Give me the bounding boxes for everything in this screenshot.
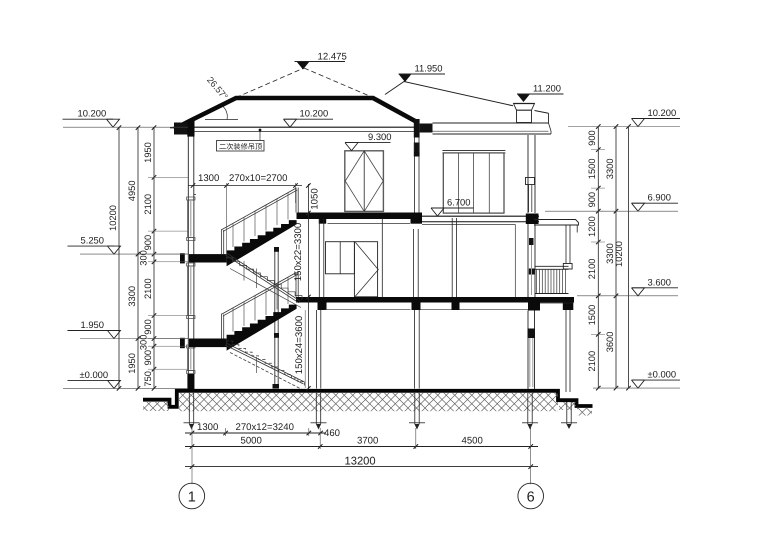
svg-text:150x22=3300: 150x22=3300 [293,223,304,281]
svg-text:900: 900 [143,235,153,251]
svg-text:1: 1 [188,490,196,506]
svg-text:2100: 2100 [587,351,597,372]
svg-text:10200: 10200 [614,241,624,267]
svg-text:1950: 1950 [143,142,153,163]
svg-text:2100: 2100 [587,259,597,280]
svg-text:270x10=2700: 270x10=2700 [229,173,287,184]
svg-text:900: 900 [143,350,153,366]
svg-text:1200: 1200 [587,216,597,237]
svg-text:±0.000: ±0.000 [648,369,677,380]
svg-text:1300: 1300 [197,422,218,433]
svg-text:3300: 3300 [127,286,137,307]
svg-text:150x24=3600: 150x24=3600 [294,316,305,374]
svg-text:6.700: 6.700 [447,197,470,208]
svg-text:5000: 5000 [241,436,262,447]
svg-text:4500: 4500 [462,436,483,447]
svg-text:10.200: 10.200 [300,108,329,119]
svg-text:900: 900 [587,192,597,208]
svg-text:1.950: 1.950 [81,319,104,330]
svg-text:900: 900 [587,130,597,146]
svg-text:6: 6 [527,490,535,506]
svg-text:3700: 3700 [357,436,378,447]
svg-text:750: 750 [143,371,153,387]
svg-text:13200: 13200 [345,456,376,468]
svg-text:3300: 3300 [605,159,615,180]
svg-text:6.900: 6.900 [648,192,671,203]
svg-text:9.300: 9.300 [368,131,391,142]
svg-text:±0.000: ±0.000 [80,369,109,380]
svg-text:4950: 4950 [127,181,137,202]
svg-text:5.250: 5.250 [81,235,104,246]
svg-text:1300: 1300 [198,173,219,184]
svg-text:10.200: 10.200 [648,107,677,118]
svg-text:1050: 1050 [310,188,321,209]
svg-text:1500: 1500 [587,305,597,326]
svg-text:11.200: 11.200 [533,83,561,94]
svg-text:900: 900 [143,319,153,335]
svg-text:10.200: 10.200 [78,108,107,119]
svg-text:11.950: 11.950 [415,63,443,74]
svg-text:二次装修吊顶: 二次装修吊顶 [219,142,262,151]
svg-text:3600: 3600 [605,332,615,353]
svg-text:2100: 2100 [143,278,153,299]
svg-text:270x12=3240: 270x12=3240 [236,422,294,433]
svg-text:1500: 1500 [587,159,597,180]
svg-text:2100: 2100 [143,194,153,215]
svg-text:12.475: 12.475 [318,52,347,63]
svg-text:460: 460 [324,428,340,439]
svg-text:10200: 10200 [108,205,118,231]
svg-text:3.600: 3.600 [648,276,671,287]
svg-text:1950: 1950 [127,353,137,374]
